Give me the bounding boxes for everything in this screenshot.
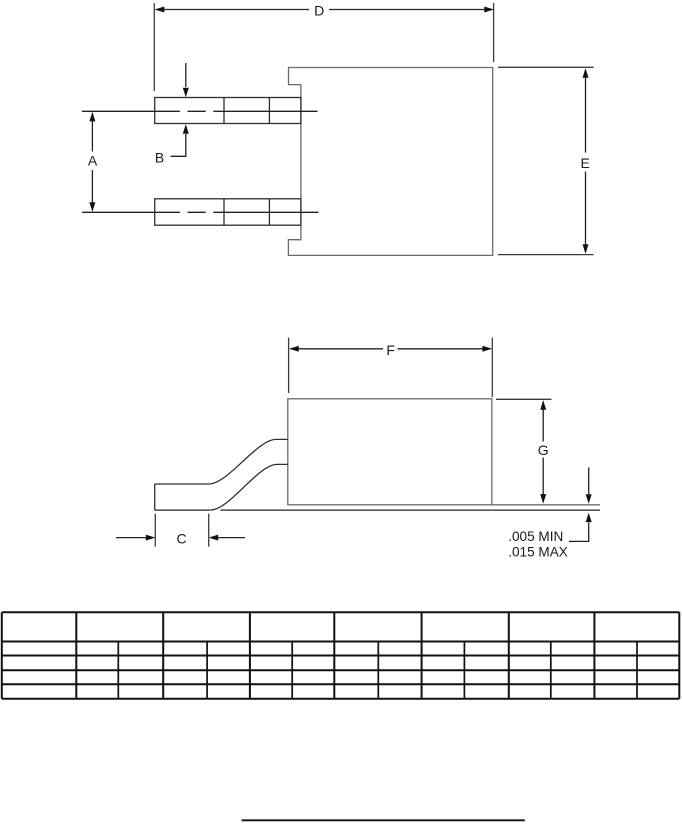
svg-text:A: A [88,152,98,168]
svg-text:E: E [581,155,590,171]
svg-text:C: C [176,531,186,547]
svg-text:.005 MIN: .005 MIN [508,529,563,544]
svg-text:G: G [538,442,549,458]
svg-text:D: D [314,2,324,18]
svg-text:.015 MAX: .015 MAX [508,544,568,559]
svg-text:B: B [155,150,164,166]
svg-text:F: F [386,342,395,358]
